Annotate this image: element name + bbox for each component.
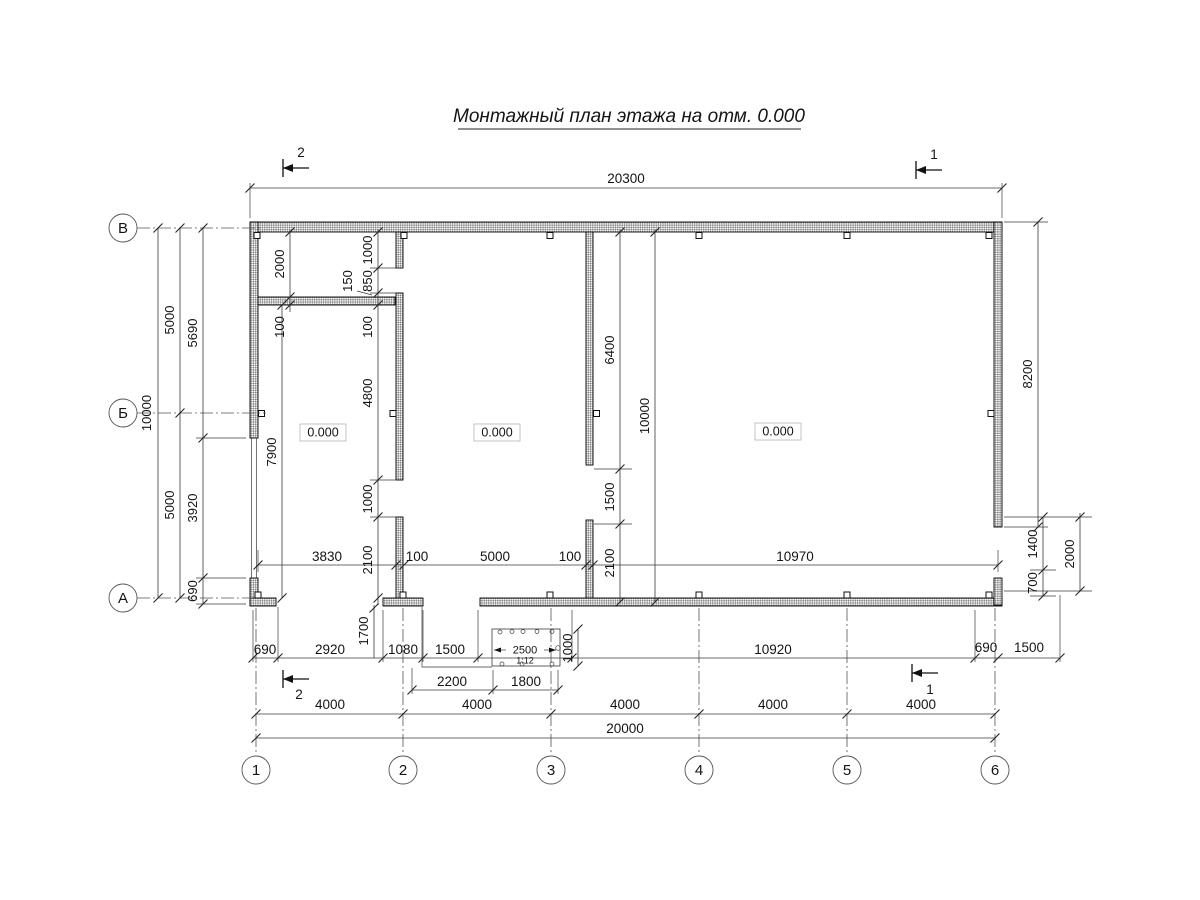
axis-col-2: 2 [399, 762, 407, 779]
dim-4000-2: 4000 [462, 697, 492, 712]
wall-right [994, 222, 1002, 527]
wall-bottom-right-corner-v [994, 578, 1002, 605]
dim-2920: 2920 [315, 642, 345, 657]
drawing-title: Монтажный план этажа на отм. 0.000 [453, 106, 805, 127]
dim-2100-a: 2100 [360, 546, 375, 575]
axis-row-v: В [118, 220, 128, 237]
dim-2000-room: 2000 [272, 250, 287, 279]
dim-100-w2: 100 [360, 316, 375, 338]
wall-bottom-piece [383, 598, 423, 606]
axis-col-5: 5 [843, 762, 851, 779]
wall-left [250, 222, 258, 438]
section-mark-1-top: 1 [916, 147, 942, 179]
ramp-arrow-left [494, 648, 501, 653]
level-room2: 0.000 [481, 426, 512, 440]
axis-col-3: 3 [547, 762, 555, 779]
dim-5690: 5690 [185, 319, 200, 348]
dim-700: 700 [1025, 572, 1040, 594]
dim-1000-door: 1000 [360, 485, 375, 514]
axis-col-4: 4 [695, 762, 703, 779]
dim-2200: 2200 [437, 674, 467, 689]
dim-1800: 1800 [511, 674, 541, 689]
dim-3920: 3920 [185, 494, 200, 523]
dim-1400: 1400 [1025, 530, 1040, 559]
dim-690-axis: 690 [185, 580, 200, 602]
axis-centerlines [137, 228, 995, 754]
dim-10970: 10970 [776, 549, 814, 564]
axis-row-a: А [118, 590, 128, 607]
section-mark-2-top: 2 [283, 145, 309, 177]
dim-1500-door: 1500 [602, 483, 617, 512]
dim-4000-4: 4000 [758, 697, 788, 712]
wall-b-lower [586, 520, 593, 598]
dim-1700: 1700 [356, 617, 371, 646]
dim-axis-total: 20000 [606, 721, 644, 736]
ramp-slope-label: 1:12 [516, 656, 534, 666]
dim-5000-row: 5000 [480, 549, 510, 564]
section-mark-1-bottom: 1 [912, 664, 938, 697]
dim-4800: 4800 [360, 379, 375, 408]
floor-plan-drawing: Монтажный план этажа на отм. 0.000 [0, 0, 1200, 900]
wall-interior-horizontal [258, 297, 395, 305]
dim-150: 150 [340, 270, 355, 292]
dim-100-w1: 100 [272, 316, 287, 338]
dim-top-overall: 20300 [607, 171, 645, 186]
level-marks: 0.000 0.000 0.000 [300, 423, 801, 441]
dim-4000-3: 4000 [610, 697, 640, 712]
section-label-1-top: 1 [930, 147, 938, 162]
drawing-sheet: Монтажный план этажа на отм. 0.000 [0, 0, 1200, 900]
wall-a-lower [396, 517, 403, 598]
dim-4000-1: 4000 [315, 697, 345, 712]
axis-col-6: 6 [991, 762, 999, 779]
wall-bottom-long [480, 598, 1002, 606]
dim-3830: 3830 [312, 549, 342, 564]
section-mark-2-bottom: 2 [283, 670, 309, 702]
dim-690-left: 690 [254, 642, 277, 657]
dim-100-b: 100 [559, 549, 582, 564]
dimension-ticks [154, 184, 1085, 743]
dim-10000-mid: 10000 [637, 398, 652, 434]
section-label-2-bottom: 2 [295, 687, 303, 702]
opening-projection-lines [252, 438, 257, 578]
dim-10920: 10920 [754, 642, 792, 657]
level-room1: 0.000 [307, 426, 338, 440]
dim-2000-right: 2000 [1062, 540, 1077, 569]
dim-1080: 1080 [388, 642, 418, 657]
axis-col-1: 1 [252, 762, 260, 779]
dim-1500: 1500 [435, 642, 465, 657]
dim-850: 850 [360, 270, 375, 292]
dimension-lines [158, 188, 1080, 738]
wall-bottom-left-corner-h [250, 598, 276, 606]
dim-left-upper: 5000 [162, 306, 177, 335]
dim-left-total: 10000 [139, 395, 154, 431]
wall-b-upper [586, 232, 593, 465]
dim-100-a: 100 [406, 549, 429, 564]
dim-8200: 8200 [1020, 360, 1035, 389]
dim-1500-right: 1500 [1014, 640, 1044, 655]
wall-a-upper [396, 293, 403, 480]
axis-row-b: Б [118, 405, 128, 422]
wall-top [250, 222, 1002, 232]
section-label-1-bottom: 1 [926, 682, 934, 697]
dim-6400: 6400 [602, 336, 617, 365]
dim-7900: 7900 [264, 438, 279, 467]
axis-bubbles: В Б А 1 2 3 4 5 6 [109, 214, 1009, 784]
dim-2100-b: 2100 [602, 549, 617, 578]
dim-690-right: 690 [975, 640, 998, 655]
dim-left-lower: 5000 [162, 491, 177, 520]
section-label-2-top: 2 [297, 145, 305, 160]
dim-1000-stub: 1000 [360, 236, 375, 265]
dim-4000-5: 4000 [906, 697, 936, 712]
level-room3: 0.000 [762, 425, 793, 439]
ramp-arrow-right [549, 648, 556, 653]
dim-1000-ramp: 1000 [560, 634, 575, 663]
